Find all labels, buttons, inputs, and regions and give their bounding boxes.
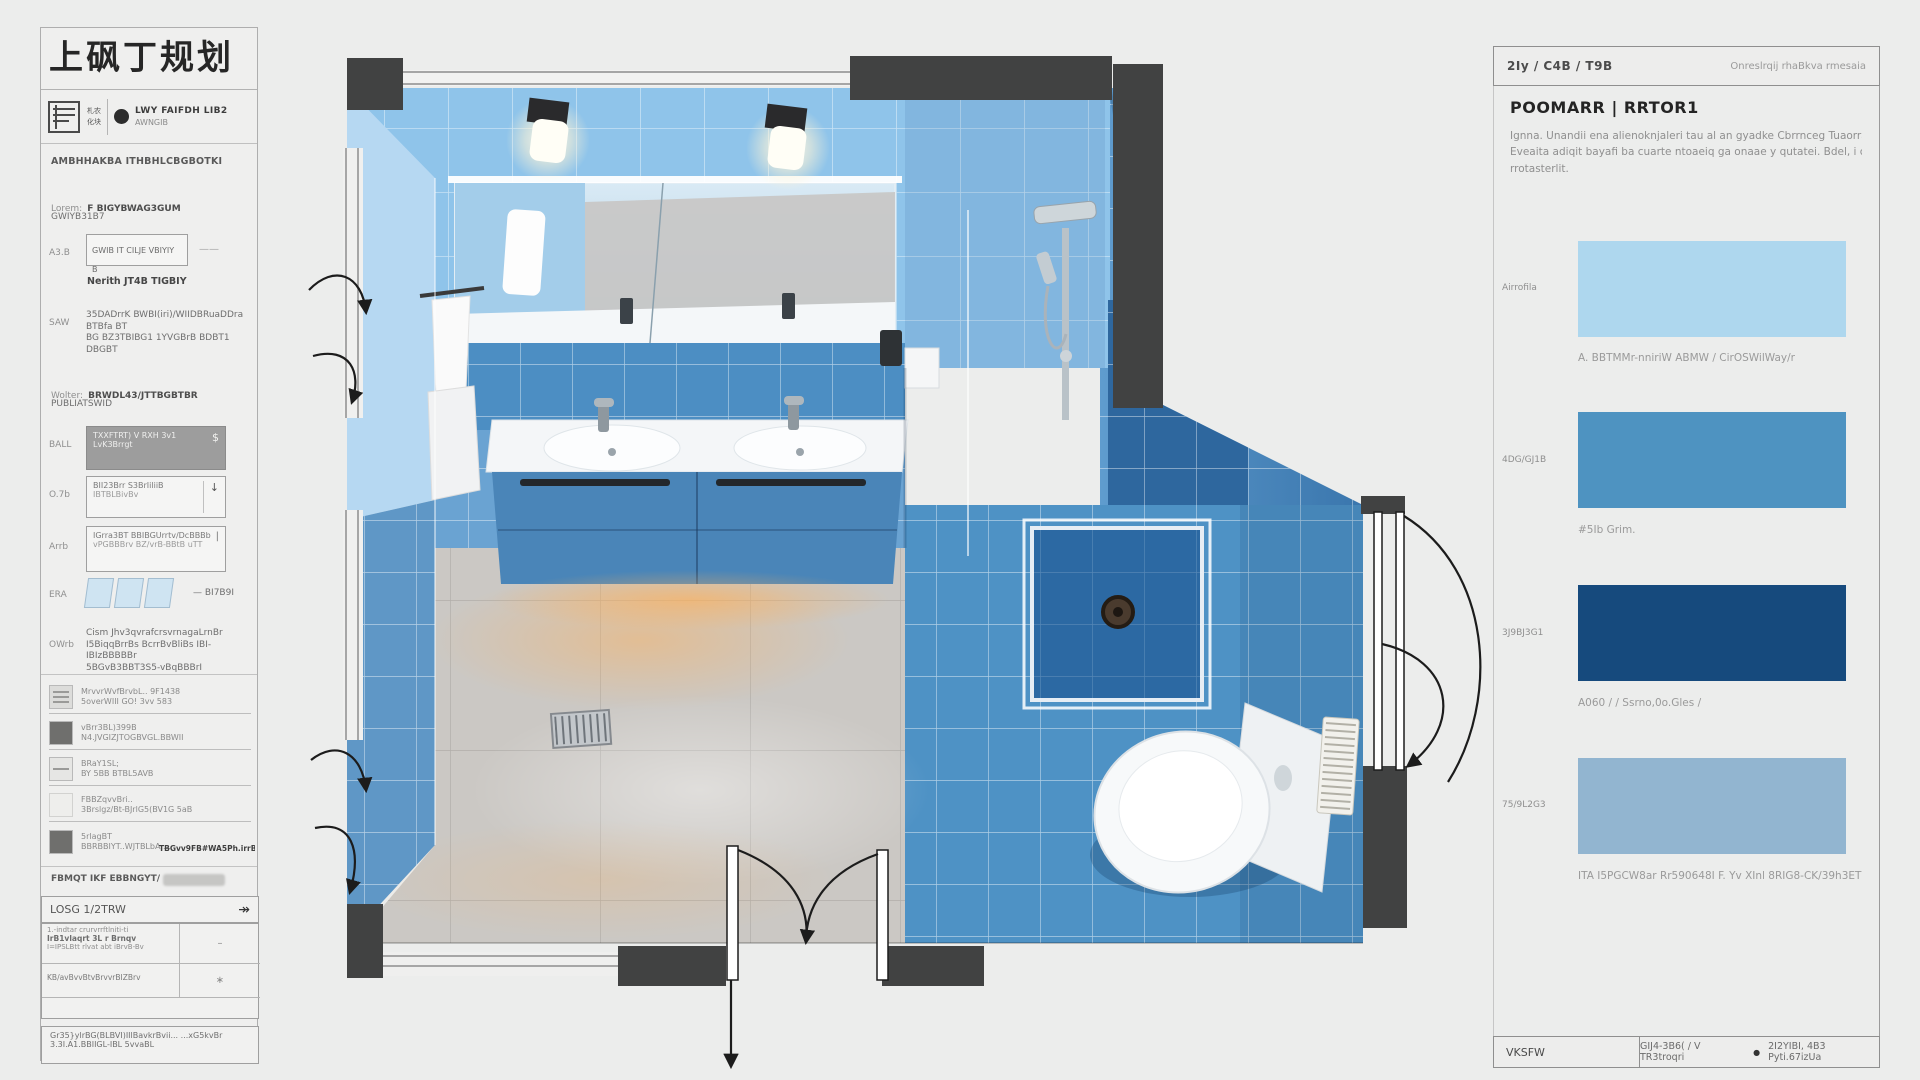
list-item[interactable]: MrvvrWvfBrvbL.. 9F1438 5overWIII GO! 3vv… — [49, 680, 251, 714]
saw-line-1: 35DADrrK BWBI(iri)/WIIDBRuaDDra BTBfa BT — [86, 310, 248, 333]
wall-segment — [882, 946, 984, 986]
tile-chip-3[interactable] — [144, 578, 174, 608]
lorem-sub: GWIYB31B7 — [51, 212, 105, 224]
footer-text-a: GIJ4-3B6( / V TR3troqri — [1640, 1041, 1745, 1063]
soap-dispenser — [880, 330, 902, 366]
list-item-line: vBrr3BL)399B — [81, 723, 183, 733]
list-item-line: BBRBBIYT..WJTBLbA,... — [81, 842, 171, 852]
list-item-line: 5rlagBT — [81, 832, 171, 842]
wall-vent — [1317, 717, 1360, 815]
ball-line-1: TXXFTRT) V RXH 3v1 — [93, 431, 176, 440]
list-item-line: BY 5BB BTBL5AVB — [81, 769, 153, 779]
ball-selected-row[interactable]: TXXFTRT) V RXH 3v1 LvK3Brrgt $ — [86, 426, 226, 470]
door-leaf — [1374, 512, 1382, 770]
page-title: 上砜丁规划 — [41, 28, 257, 90]
header-line-1: LWY FAIFDH LIB2 — [135, 106, 228, 116]
mirror-light-strip — [448, 176, 902, 183]
saw-line-2: BG BZ3TBIBG1 1YVGBrB BDBT1 DBGBT — [86, 333, 248, 356]
header-right-text: Onreslrqij rhaBkva rmesaia — [1730, 61, 1866, 72]
wall-segment — [618, 946, 726, 986]
wall-segment — [850, 56, 1112, 100]
floor-drain — [551, 710, 611, 748]
wall-segment — [347, 58, 403, 110]
tile-chip-1[interactable] — [84, 578, 114, 608]
text-input-value: GWIB IT CILJE VBIYIY B — [92, 246, 174, 274]
ann-line-1: IGrra3BT BBIBGUrrtv/DcBBBb — [93, 531, 211, 540]
ball-line-2: LvK3Brrgt — [93, 440, 176, 449]
right-header-strip: 2Iy / C4B / T9B Onreslrqij rhaBkva rmesa… — [1493, 46, 1880, 86]
list-item-right-text: TBGvv9FB#WA5Ph.irrBF — [159, 844, 255, 853]
footer-text-b: 2I2YIBI, 4B3 Pyti.67izUa — [1768, 1041, 1879, 1063]
bullet-dot-icon — [114, 109, 129, 124]
losg-label: LOSG 1/2TRW — [50, 903, 126, 916]
divider — [41, 866, 257, 867]
list-item[interactable]: 5rlagBT BBRBBIYT..WJTBLbA,... — [49, 824, 251, 860]
tile-chip-2[interactable] — [114, 578, 144, 608]
shower-valve — [1060, 350, 1072, 362]
footnote-line: Gr35}ylrBG(BLBVI)IIlBavkrBvii... ...xG5k… — [50, 1031, 250, 1040]
footer-bar: VKSFW GIJ4-3B6( / V TR3troqri ● 2I2YIBI,… — [1493, 1036, 1880, 1068]
paragraph-line: Eveaita adiqit bayafi ba cuarte ntoaeiq … — [1510, 144, 1862, 160]
logo-mark-2: 化块 — [87, 117, 101, 127]
list-item-line: N4.JVGIZJTOGBVGL.BBWII — [81, 733, 183, 743]
wall-segment — [1113, 64, 1163, 408]
paragraph-line: Ignna. Unandii ena alienoknjaleri tau al… — [1510, 128, 1862, 144]
faint-icon — [49, 793, 73, 817]
saw-text: 35DADrrK BWBI(iri)/WIIDBRuaDDra BTBfa BT… — [86, 310, 248, 357]
panel-paragraph: Ignna. Unandii ena alienoknjaleri tau al… — [1510, 128, 1862, 177]
smudge-mark — [163, 874, 225, 886]
photo-icon — [49, 830, 73, 854]
list-item-line: 3Brslgz/Bt-BJrlG5(BV1G 5aB — [81, 805, 192, 815]
cursor-mark: | — [216, 531, 219, 567]
table-cell-empty — [42, 998, 260, 1020]
door-leaf — [1396, 512, 1404, 770]
door-leaf — [727, 846, 738, 980]
table-cell: 1.-indtar crurvrrftlniti-ti IrB1vlaqrt 3… — [42, 924, 180, 964]
own-text: Cism Jhv3qvrafcrsvrnagaLrnBr I5BiqqBrrBs… — [86, 628, 250, 675]
swatch-caption: A. BBTMMr-nniriW ABMW / CirOSWilWay/r — [1578, 352, 1868, 364]
on-line-2: IBTBLBivBv — [93, 490, 164, 499]
wolter-sub: PUBLIATSWID — [51, 399, 112, 411]
vanity — [486, 396, 908, 630]
ann-line-2: vPGBBBrv BZ/vrB-BBtB uTT — [93, 540, 211, 549]
list-item[interactable]: FBBZqvvBri.. 3Brslgz/Bt-BJrlG5(BV1G 5aB — [49, 788, 251, 822]
divider — [107, 99, 108, 135]
fbiyit-label: FBMQT IKF EBBNGYT/ — [51, 874, 160, 886]
table-cell: – — [180, 924, 260, 964]
sidebar-intro: AMBHHAKBA ITHBHLCBGBOTKI — [51, 156, 251, 167]
design-board: 上砜丁规划 札农 化块 LWY FAIFDH LIB2 AWNGIB AMBHH… — [0, 0, 1920, 1080]
swatch-caption: ITA I5PGCW8ar Rr590648I F. Yv XInl 8RIG8… — [1578, 870, 1878, 882]
document-icon — [49, 685, 73, 709]
field-note: Nerith JT4B TIGBIY — [87, 276, 187, 287]
under-cabinet-glow — [490, 570, 890, 630]
wall-segment — [347, 904, 383, 978]
ann-row[interactable]: IGrra3BT BBIBGUrrtv/DcBBBb vPGBBBrv BZ/v… — [86, 526, 226, 572]
swatch-caption: #5Ib Grim. — [1578, 524, 1868, 536]
list-item-line: BRaY1SL; — [81, 759, 153, 769]
list-item-line: 5overWIII GO! 3vv 583 — [81, 697, 180, 707]
shower-rail — [1062, 228, 1069, 420]
table-cell-line: KB/avBvvBtvBrvvrBIZBrv — [47, 973, 174, 982]
era-value: — BI7B9I — [193, 588, 234, 600]
list-item[interactable]: vBrr3BL)399B N4.JVGIZJTOGBVGL.BBWII — [49, 716, 251, 750]
field-label-era: ERA — [49, 590, 67, 600]
era-swatch-chips[interactable] — [86, 578, 172, 608]
field-label-aub: A3.B — [49, 248, 70, 258]
header-line-2: AWNGIB — [135, 118, 228, 128]
table-cell-line: I=IPSLBtt rlvat abt iBrvB-Bv — [47, 943, 174, 951]
spec-table: 1.-indtar crurvrrftlniti-ti IrB1vlaqrt 3… — [41, 923, 259, 1019]
room-interior — [347, 88, 1363, 943]
color-swatch-4[interactable] — [1578, 758, 1846, 854]
swatch-caption: A060 / / Ssrno,0o.Gles / — [1578, 697, 1868, 709]
sidebar-footnote: Gr35}ylrBG(BLBVI)IIlBavkrBvii... ...xG5k… — [41, 1026, 259, 1064]
arrow-right-icon: ↠ — [238, 902, 250, 918]
sketch-icon — [49, 757, 73, 781]
sidebar: 上砜丁规划 札农 化块 LWY FAIFDH LIB2 AWNGIB AMBHH… — [40, 27, 258, 1061]
table-cell-line: 1.-indtar crurvrrftlniti-ti — [47, 926, 174, 934]
color-swatch-3[interactable] — [1578, 585, 1846, 681]
bathroom-render — [290, 44, 1500, 1080]
color-swatch-2[interactable] — [1578, 412, 1846, 508]
logo-mark-1: 札农 — [87, 106, 101, 116]
door-swing-arc — [1404, 516, 1480, 782]
swatch-label: 75/9L2G3 — [1502, 800, 1546, 810]
dollar-icon: $ — [212, 431, 219, 465]
footer-bullet-icon: ● — [1753, 1048, 1760, 1057]
wall-shelf — [905, 348, 939, 388]
footer-left: VKSFW — [1494, 1037, 1640, 1067]
text-input[interactable]: GWIB IT CILJE VBIYIY B — [86, 234, 188, 266]
list-item-line: FBBZqvvBri.. — [81, 795, 192, 805]
wall-segment — [1363, 766, 1407, 928]
list-item-line: MrvvrWvfBrvbL.. 9F1438 — [81, 687, 180, 697]
table-cell: KB/avBvvBtvBrvvrBIZBrv — [42, 964, 180, 998]
field-label-on: O.7b — [49, 490, 70, 500]
table-cell-line: IrB1vlaqrt 3L r Brnqv — [47, 934, 174, 943]
own-line-2: I5BiqqBrrBs BcrrBvBliBs IBI-IBIzBBBBBr — [86, 640, 250, 663]
swatch-label: Airrofila — [1502, 283, 1537, 293]
field-label-saw: SAW — [49, 318, 69, 328]
own-line-3: 5BGvB3BBT3S5-vBqBBBrI — [86, 663, 250, 675]
door-leaf — [877, 850, 888, 980]
brand-logo-icon — [47, 100, 81, 134]
mirror — [455, 183, 895, 343]
panel-heading: POOMARR | RRTOR1 — [1510, 98, 1699, 117]
table-cell: ∗ — [180, 964, 260, 998]
photo-icon — [49, 721, 73, 745]
color-swatch-1[interactable] — [1578, 241, 1846, 337]
wall-lamp-left — [506, 98, 590, 182]
footnote-line: 3.3I.A1.BBIIGL-IBL 5vvaBL — [50, 1040, 250, 1049]
logo-row: 札农 化块 LWY FAIFDH LIB2 AWNGIB — [41, 90, 257, 144]
breadcrumb: 2Iy / C4B / T9B — [1507, 59, 1613, 73]
field-label-ball: BALL — [49, 440, 71, 450]
own-line-1: Cism Jhv3qvrafcrsvrnagaLrnBr — [86, 628, 250, 640]
on-row[interactable]: BII23Brr S3BrIiliiB IBTBLBivBv ↓ — [86, 476, 226, 518]
field-label-own: OWrb — [49, 640, 74, 650]
field-dash: —— — [199, 244, 219, 255]
on-line-1: BII23Brr S3BrIiliiB — [93, 481, 164, 490]
swatch-label: 3J9BJ3G1 — [1502, 628, 1543, 638]
paragraph-line: rrotasterlit. — [1510, 161, 1862, 177]
field-label-ann: Arrb — [49, 542, 68, 552]
door-swing-arc — [1382, 644, 1443, 766]
swatch-label: 4DG/GJ1B — [1502, 455, 1546, 465]
list-item[interactable]: BRaY1SL; BY 5BB BTBL5AVB — [49, 752, 251, 786]
losg-link-row[interactable]: LOSG 1/2TRW ↠ — [41, 896, 259, 923]
right-panel — [1493, 86, 1880, 1036]
divider — [41, 674, 257, 675]
arrow-down-icon: ↓ — [203, 481, 219, 513]
